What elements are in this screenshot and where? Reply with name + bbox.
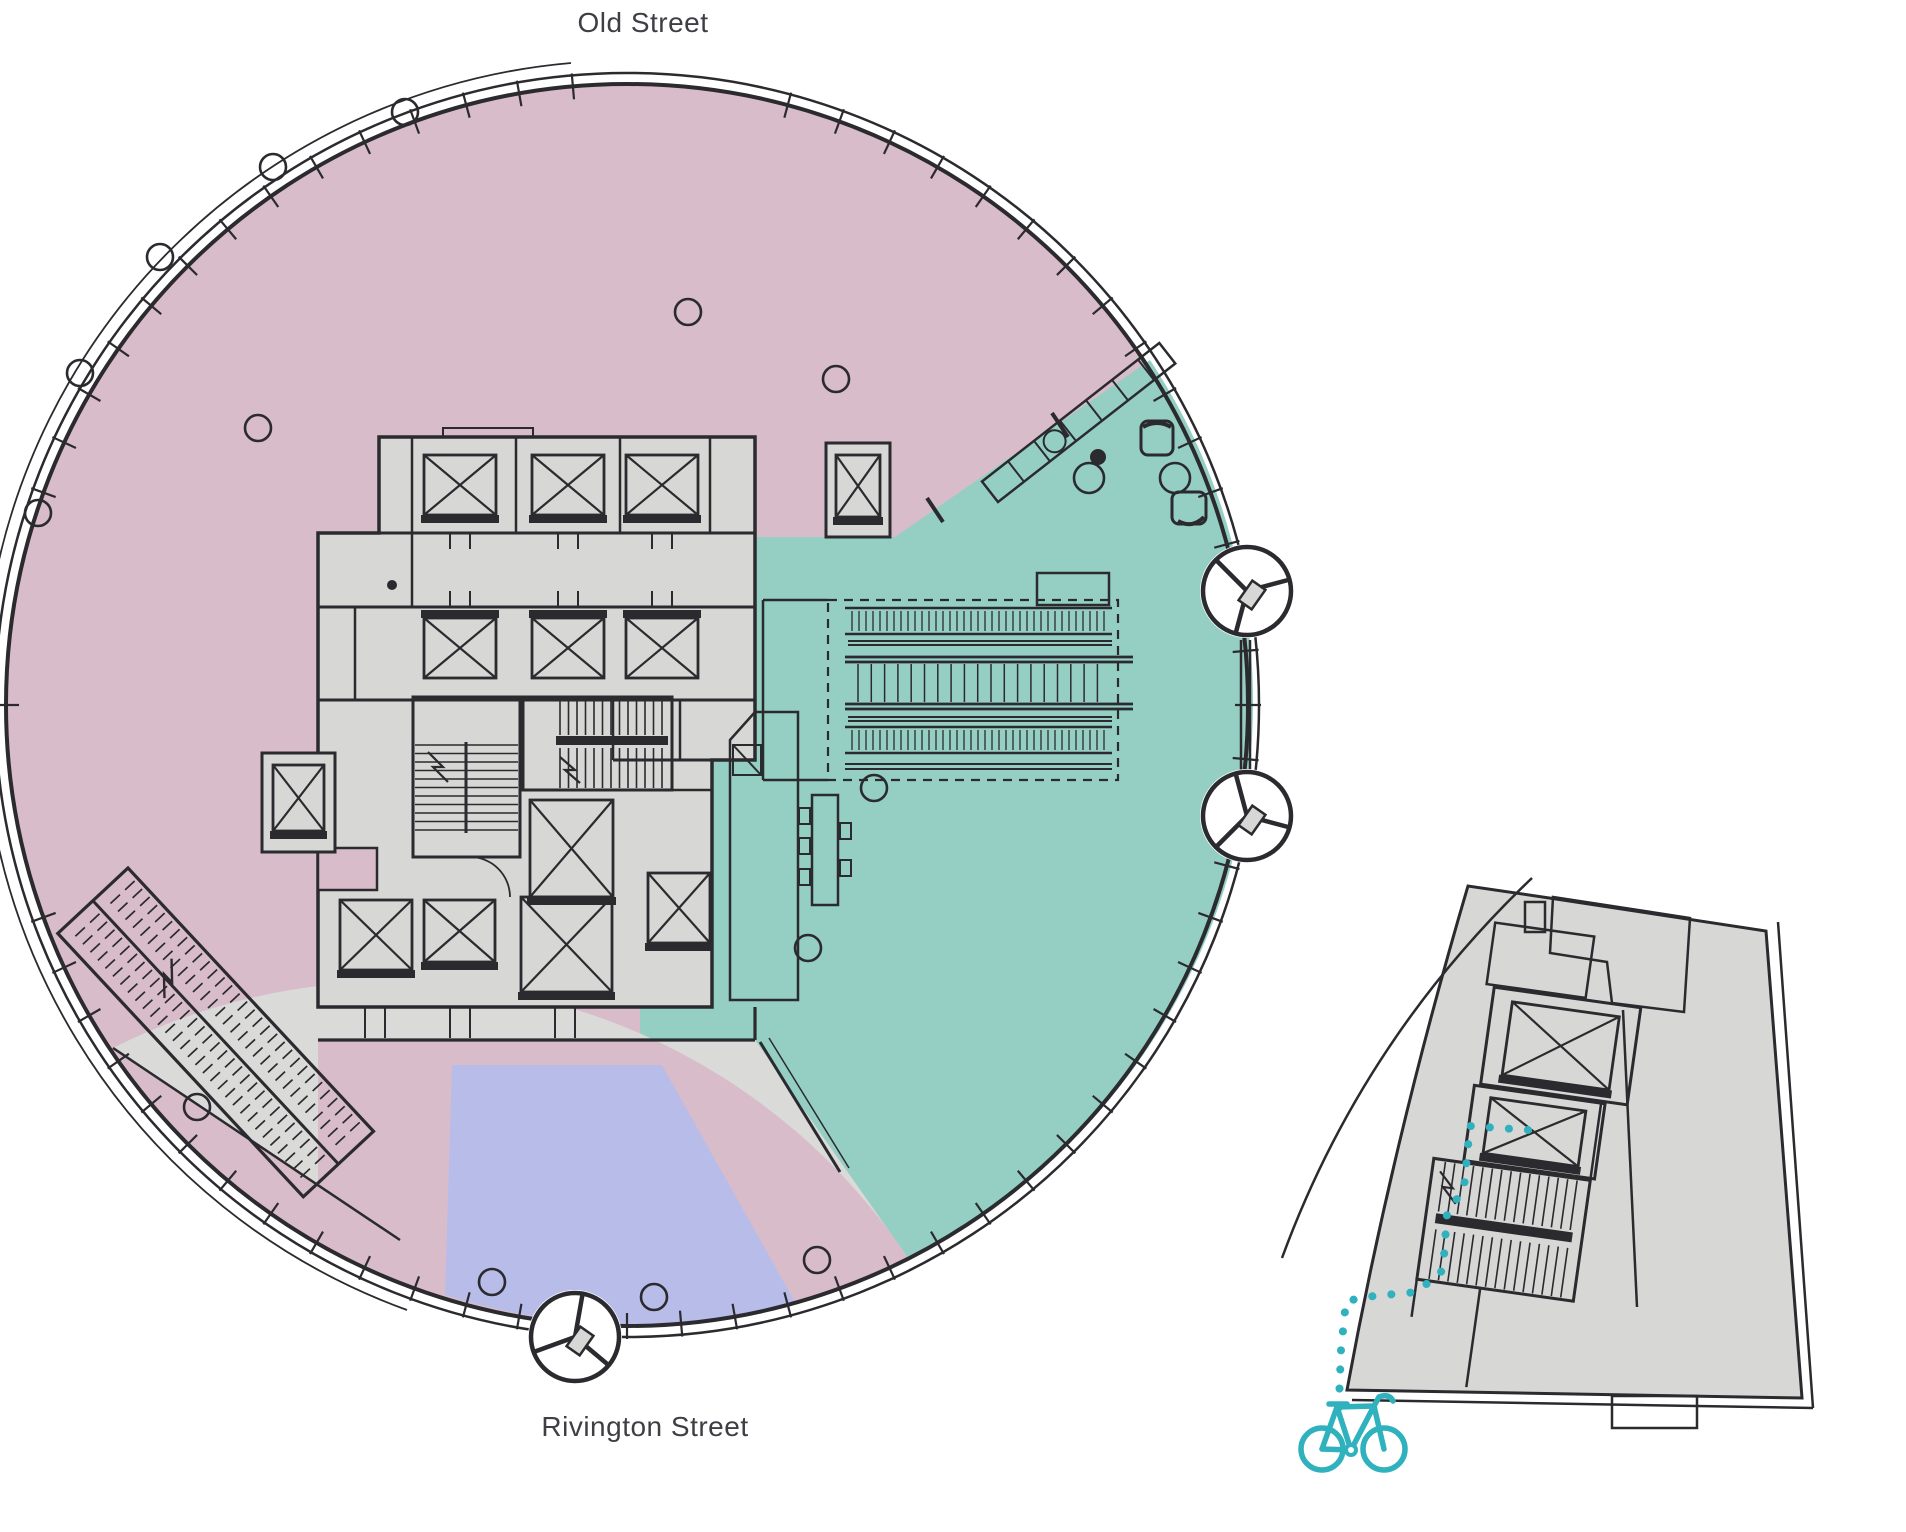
elevator-sill (270, 831, 327, 839)
elevator-sill (623, 515, 701, 523)
secondary-outer-line (1352, 1400, 1813, 1408)
bicycle-icon (1301, 1396, 1405, 1470)
revolving-door-icon (528, 1290, 622, 1384)
main-floorplan: Old Street Rivington Street (0, 0, 1906, 1532)
bicycle-crank (1346, 1445, 1356, 1455)
elevator-sill (337, 970, 415, 978)
elevator-sill (623, 610, 701, 618)
wc-fixture (387, 580, 397, 590)
elevator-sill (833, 517, 883, 525)
elevator-sill (529, 610, 607, 618)
stair-landing (556, 736, 668, 745)
building-core (318, 428, 755, 1040)
revolving-door-icon (1200, 544, 1294, 638)
secondary-floorplan (1282, 878, 1813, 1428)
floorplan-canvas: Old Street Rivington Street (0, 0, 1906, 1532)
column-marker (147, 244, 173, 270)
elevator-sill (518, 992, 615, 1000)
revolving-door-icon (1200, 769, 1294, 863)
elevator-sill (421, 610, 499, 618)
elevator-sill (529, 515, 607, 523)
elevator-sill (645, 943, 713, 951)
service-elevator-left (262, 753, 335, 852)
secondary-outline (1347, 886, 1802, 1398)
elevator-sill (421, 962, 498, 970)
street-label-bottom: Rivington Street (541, 1411, 748, 1442)
street-label-top: Old Street (577, 7, 708, 38)
secondary-bottom-stub (1612, 1396, 1697, 1428)
core-pink-inset (318, 848, 377, 890)
service-elevator-top (826, 443, 890, 537)
elevator-sill (421, 515, 499, 523)
